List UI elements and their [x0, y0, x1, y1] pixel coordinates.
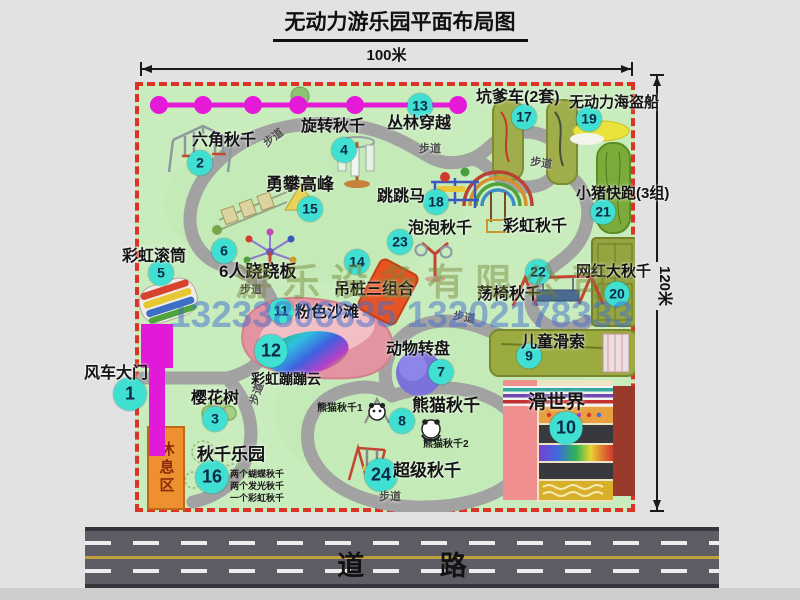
label-7: 动物转盘 — [386, 342, 450, 358]
label-1: 风车大门 — [84, 366, 148, 382]
label-23: 泡泡秋千 — [408, 221, 472, 237]
label-4: 旋转秋千 — [301, 119, 365, 135]
marker-15: 15 — [298, 197, 323, 222]
label-9: 儿童滑索 — [521, 335, 585, 351]
small-label-1: 熊猫秋千2 — [423, 440, 469, 450]
marker-18: 18 — [424, 190, 449, 215]
label-10: 滑世界 — [528, 393, 585, 412]
label-24: 超级秋千 — [393, 462, 461, 479]
marker-17: 17 — [512, 105, 537, 130]
small-label-0: 熊猫秋千1 — [317, 404, 363, 414]
walkway-label-1: 步道 — [419, 144, 441, 155]
walkway-label-0: 步道 — [262, 127, 286, 149]
label-2: 六角秋千 — [192, 133, 256, 149]
marker-16: 16 — [196, 461, 229, 494]
label-18: 跳跳马 — [377, 189, 425, 205]
marker-3: 3 — [203, 407, 228, 432]
marker-6: 6 — [212, 239, 237, 264]
marker-8: 8 — [390, 409, 415, 434]
walkway-label-6: 步道 — [379, 492, 401, 503]
label-17: 坑爹车(2套) — [476, 90, 560, 106]
marker-12: 12 — [255, 335, 288, 368]
marker-7: 7 — [429, 360, 454, 385]
marker-2: 2 — [188, 151, 213, 176]
marker-10: 10 — [550, 412, 583, 445]
walkway-label-2: 步道 — [529, 157, 552, 171]
marker-21: 21 — [591, 200, 616, 225]
park-layout-screenshot: 无动力游乐园平面布局图 100米 120米 — [0, 0, 800, 600]
label-19: 无动力海盗船 — [569, 95, 659, 110]
label-21: 小猪快跑(3组) — [576, 186, 669, 201]
label-15: 勇攀高峰 — [266, 176, 334, 193]
phone-watermark: 13233806635 13202178333 — [170, 294, 633, 336]
notes-16: 两个蝴蝶秋千两个发光秋千一个彩虹秋千 — [230, 468, 284, 504]
label-8: 熊猫秋千 — [412, 397, 480, 414]
label-3: 樱花树 — [191, 391, 239, 407]
label-5: 彩虹滚筒 — [122, 249, 186, 265]
label-13: 丛林穿越 — [387, 116, 451, 132]
label-16: 秋千乐园 — [197, 446, 265, 463]
marker-1: 1 — [114, 378, 147, 411]
marker-4: 4 — [332, 138, 357, 163]
label-rainbow-swing: 彩虹秋千 — [503, 219, 567, 235]
